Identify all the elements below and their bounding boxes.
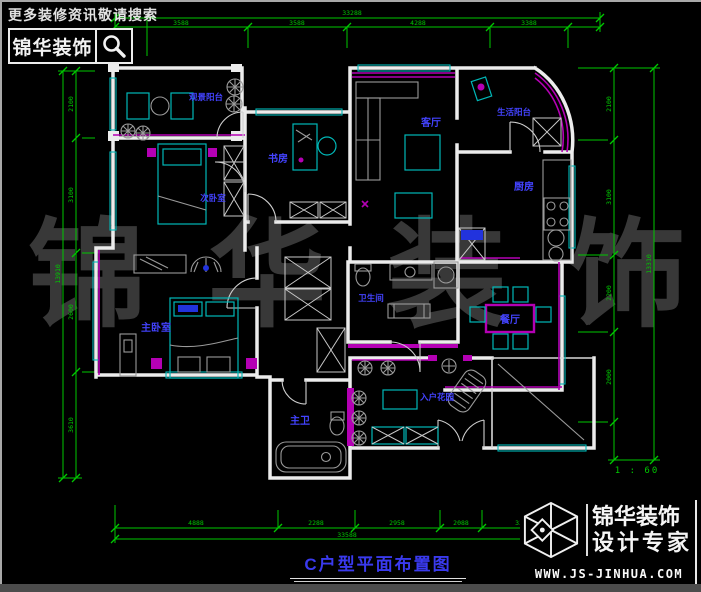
dim-right-seg: 3100 <box>605 189 613 205</box>
dim-top-seg: 3388 <box>521 19 537 27</box>
dim-top-seg: 3588 <box>173 19 189 27</box>
balcony-furniture <box>121 79 243 140</box>
cube-logo-icon <box>520 501 582 559</box>
plant-icon <box>121 79 243 140</box>
living-furniture <box>356 82 440 218</box>
brand-logo-box[interactable]: 锦华装饰 <box>8 28 133 64</box>
side-room <box>498 364 584 440</box>
dim-bottom-seg: 4888 <box>188 519 204 527</box>
dim-left-total: 13910 <box>54 264 62 284</box>
dimension-lines: 33288 3588 3588 4288 3388 4888 2288 2958… <box>54 9 660 543</box>
dim-bottom-total: 33588 <box>337 531 357 539</box>
dim-bottom-seg: 2958 <box>389 519 405 527</box>
dim-right-total: 13310 <box>645 254 653 274</box>
room-label: 入户花园 <box>419 392 454 402</box>
dim-left-seg: 2600 <box>67 304 75 320</box>
room-label: 主卫 <box>290 414 310 427</box>
footer-brand-name: 锦华装饰 <box>592 504 698 530</box>
dim-top-seg: 3588 <box>289 19 305 27</box>
footer-brand-block[interactable]: 锦华装饰 设计专家 WWW.JS-JINHUA.COM <box>520 498 698 584</box>
room-label: 主卧室 <box>141 321 171 334</box>
master-bath-furniture <box>276 412 346 472</box>
footer-edge-line <box>695 500 697 584</box>
footer-divider <box>586 504 588 556</box>
dim-left-seg: 3610 <box>67 417 75 433</box>
footer-website[interactable]: WWW.JS-JINHUA.COM <box>520 567 698 581</box>
dim-left-seg: 2100 <box>67 96 75 112</box>
room-label: 书房 <box>268 152 288 165</box>
dim-bottom-seg: 2288 <box>308 519 324 527</box>
hall-cabinets <box>285 257 345 372</box>
master-bedroom-furniture <box>120 255 257 378</box>
drawing-title: C户型平面布置图 <box>290 550 466 575</box>
study-furniture <box>290 124 346 218</box>
title-underline <box>290 578 466 579</box>
room-label: 生活阳台 <box>497 107 532 117</box>
dim-top-seg: 4288 <box>410 19 426 27</box>
dim-right-seg: 2000 <box>605 369 613 385</box>
plant-icon <box>352 361 395 445</box>
dim-right-seg: 2100 <box>605 96 613 112</box>
bedroom2-furniture <box>147 144 244 224</box>
drawing-title-block: C户型平面布置图 <box>290 550 466 582</box>
dim-top-total: 33288 <box>342 9 362 17</box>
room-label: 观景阳台 <box>189 92 224 102</box>
room-label: 厨房 <box>514 180 534 193</box>
dim-right-seg: 2200 <box>605 285 613 301</box>
cad-canvas: 锦华装饰 33288 3588 3588 4288 3388 4888 2288… <box>0 0 701 592</box>
search-hint-text: 更多装修资讯敬请搜索 <box>8 5 158 25</box>
brand-logo-text: 锦华装饰 <box>10 33 95 60</box>
room-label: 次卧室 <box>200 193 226 203</box>
header: 更多装修资讯敬请搜索 锦华装饰 <box>8 5 158 64</box>
walls <box>96 64 594 478</box>
dim-bottom-seg: 2088 <box>453 519 469 527</box>
title-underline <box>294 581 463 582</box>
scale-label: 1 : 60 <box>615 466 660 476</box>
footer-brand-tagline: 设计专家 <box>592 530 698 556</box>
room-label: 卫生间 <box>358 293 384 303</box>
dim-left-seg: 3100 <box>67 187 75 203</box>
bathroom-furniture <box>355 262 458 318</box>
magnifier-icon <box>97 30 131 62</box>
room-label: 客厅 <box>420 116 441 129</box>
room-label: 餐厅 <box>499 313 520 326</box>
kitchen-furniture <box>459 160 571 261</box>
